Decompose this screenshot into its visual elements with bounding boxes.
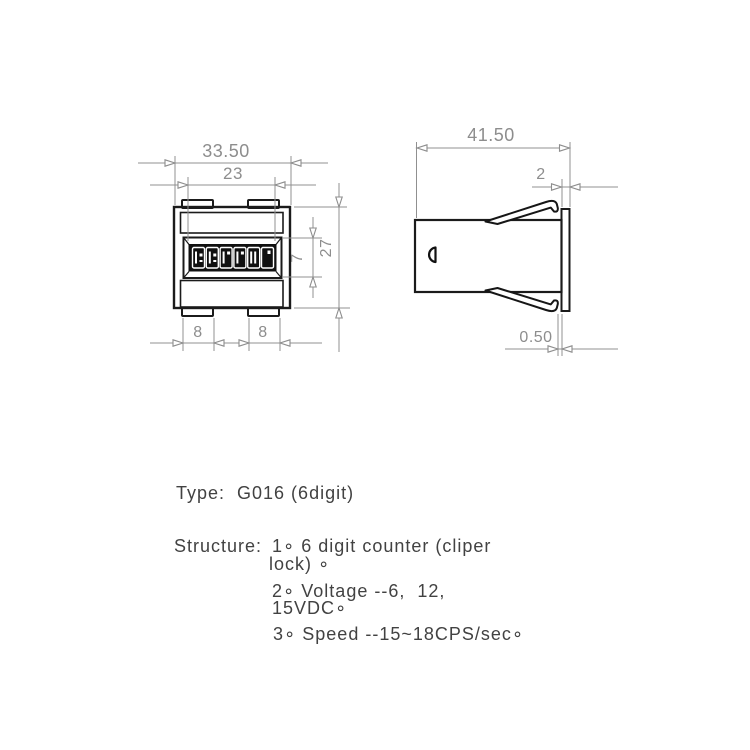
structure-item-1-line-2: lock) ∘ bbox=[269, 554, 330, 575]
structure-label: Structure: bbox=[174, 536, 262, 557]
technical-drawing-page: 33.50 23 8 8 7 27 41.50 2 0.50 bbox=[0, 0, 750, 750]
structure-item-2-line-2: 15VDC∘ bbox=[272, 598, 347, 619]
structure-item-3-line-1: 3∘ Speed --15~18CPS/sec∘ bbox=[273, 624, 524, 645]
type-line: Type: G016 (6digit) bbox=[176, 483, 354, 504]
notes-block: Type: G016 (6digit) Structure: 1∘ 6 digi… bbox=[0, 0, 750, 750]
